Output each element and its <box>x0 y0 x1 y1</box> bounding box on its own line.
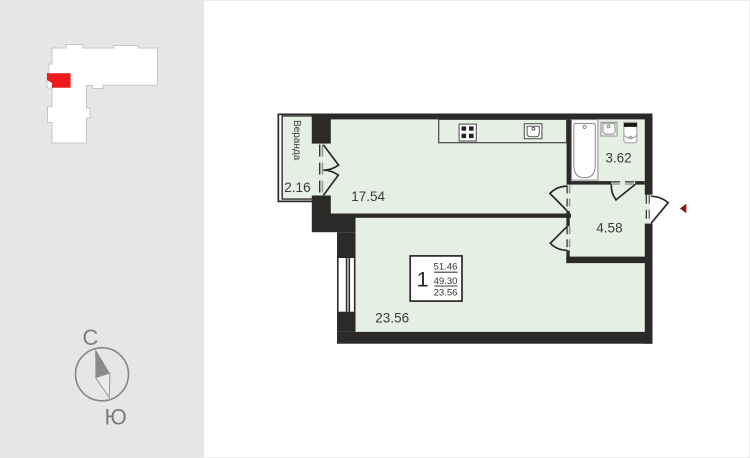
svg-text:Веранда: Веранда <box>291 120 302 161</box>
svg-text:17.54: 17.54 <box>351 189 385 204</box>
svg-text:23.56: 23.56 <box>375 311 409 326</box>
svg-text:С: С <box>83 325 99 350</box>
svg-text:1: 1 <box>417 267 429 291</box>
svg-text:51.46: 51.46 <box>434 262 458 273</box>
svg-text:Ю: Ю <box>104 405 126 430</box>
svg-text:4.58: 4.58 <box>596 221 622 236</box>
svg-text:23.56: 23.56 <box>434 288 458 299</box>
svg-text:3.62: 3.62 <box>605 151 631 166</box>
svg-text:2.16: 2.16 <box>284 180 310 195</box>
